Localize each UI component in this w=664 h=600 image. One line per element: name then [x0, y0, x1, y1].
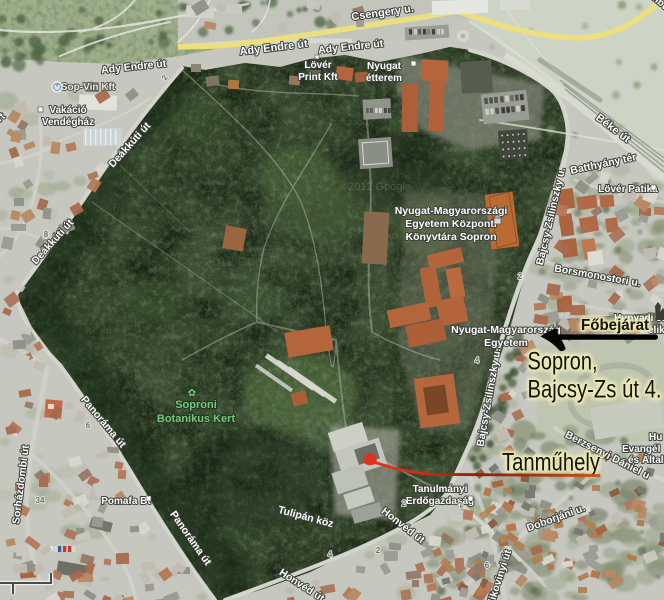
svg-text:Vendégház: Vendégház [42, 117, 94, 128]
svg-text:6: 6 [86, 421, 91, 430]
svg-text:Egyetem Központi: Egyetem Központi [405, 218, 497, 230]
svg-text:✿: ✿ [188, 388, 196, 399]
svg-text:Tanulmányi: Tanulmányi [413, 484, 468, 495]
svg-text:8: 8 [44, 230, 49, 239]
svg-text:Lövér: Lövér [304, 60, 331, 71]
svg-text:Erdőgazdaság: Erdőgazdaság [406, 496, 474, 507]
svg-text:Lövér Patika: Lövér Patika [598, 184, 658, 195]
svg-text:M: M [54, 85, 60, 92]
svg-text:Főbejárat: Főbejárat [581, 317, 649, 334]
svg-text:2: 2 [518, 272, 523, 281]
svg-text:2: 2 [376, 546, 381, 555]
svg-text:Pomafa Bt: Pomafa Bt [101, 496, 151, 507]
svg-text:©2012 Google: ©2012 Google [340, 181, 411, 193]
svg-text:©2012 Google: ©2012 Google [540, 555, 611, 567]
svg-text:Botanikus Kert: Botanikus Kert [157, 413, 236, 425]
svg-text:étterem: étterem [366, 73, 402, 84]
svg-text:és Által: és Által [628, 453, 664, 466]
svg-text:Sopron,: Sopron, [528, 348, 598, 376]
svg-text:Soproni: Soproni [175, 399, 217, 411]
svg-text:2: 2 [402, 499, 407, 508]
svg-text:Sop-Vin Kft: Sop-Vin Kft [61, 82, 116, 93]
svg-text:Evangél: Evangél [622, 444, 661, 455]
svg-text:Nyugat: Nyugat [367, 61, 402, 72]
svg-text:Nyugat-Magyarországi: Nyugat-Magyarországi [395, 205, 508, 217]
svg-text:Könyvtára Sopron: Könyvtára Sopron [405, 231, 496, 243]
svg-text:2012 Google: 2012 Google [205, 254, 279, 269]
svg-text:Egyetem: Egyetem [484, 337, 528, 349]
svg-text:Bajcsy-Zs út 4.: Bajcsy-Zs út 4. [528, 376, 662, 404]
svg-text:6: 6 [485, 561, 490, 570]
svg-text:Tanműhely: Tanműhely [502, 449, 600, 477]
svg-text:4: 4 [328, 550, 333, 559]
svg-text:4: 4 [475, 356, 480, 365]
svg-text:Print Kft: Print Kft [298, 72, 338, 83]
svg-text:Hu: Hu [649, 432, 662, 443]
svg-text:Vakáció: Vakáció [49, 105, 86, 116]
svg-text:élik: élik [648, 325, 664, 336]
svg-text:34: 34 [36, 496, 45, 505]
